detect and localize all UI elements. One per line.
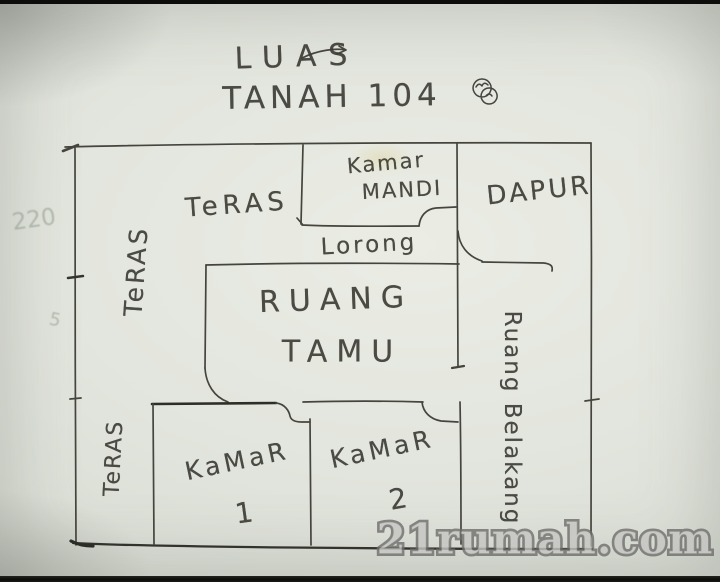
- room-label-ruang-tamu-line1: RUANG: [258, 280, 413, 320]
- kamar-divider-wall: [310, 419, 311, 545]
- tick-right: [585, 399, 599, 401]
- kamar1-top-wall: [152, 403, 276, 404]
- dapur-door-arc: [458, 231, 482, 261]
- tick-left-lower: [70, 398, 81, 399]
- kamar1-door-jog: [276, 403, 310, 422]
- divider-wall-upper: [457, 143, 458, 367]
- kamar1-left-wall: [153, 404, 154, 544]
- room-label-ruang-belakang: Ruang Belakang: [499, 311, 525, 526]
- watermark-text: 21rumah.com: [377, 515, 714, 564]
- title-line2: TANAH 104: [222, 77, 442, 117]
- room-label-teras-bottom: TeRAS: [100, 419, 129, 497]
- kamar2-top-wall: [303, 401, 423, 402]
- tick-left-upper: [68, 276, 83, 278]
- watermark: 21rumah.com 21rumah.com: [377, 515, 714, 564]
- title-line1: LUAS: [234, 37, 360, 76]
- outer-wall-top: [65, 143, 591, 147]
- kamar-mandi-door: [419, 207, 456, 226]
- area-unit-scribble-icon: [473, 79, 497, 104]
- dapur-bottom-wall: [482, 262, 552, 271]
- outer-wall-left: [75, 147, 76, 545]
- kamar-mandi-left-wall: [301, 145, 303, 224]
- divider-wall-end-tick: [452, 366, 464, 368]
- room-label-ruang-tamu-line2: TAMU: [282, 335, 402, 370]
- kamar2-door-arc: [422, 402, 458, 422]
- ruang-tamu-door-arc: [205, 368, 228, 402]
- ruang-tamu-left-wall: [205, 265, 206, 368]
- kamar-mandi-bottom-wall: [297, 218, 419, 226]
- ruang-tamu-top-wall: [206, 263, 459, 265]
- room-label-lorong: Lorong: [320, 229, 418, 260]
- room-label-kamar-mandi-line2: MANDI: [361, 176, 443, 204]
